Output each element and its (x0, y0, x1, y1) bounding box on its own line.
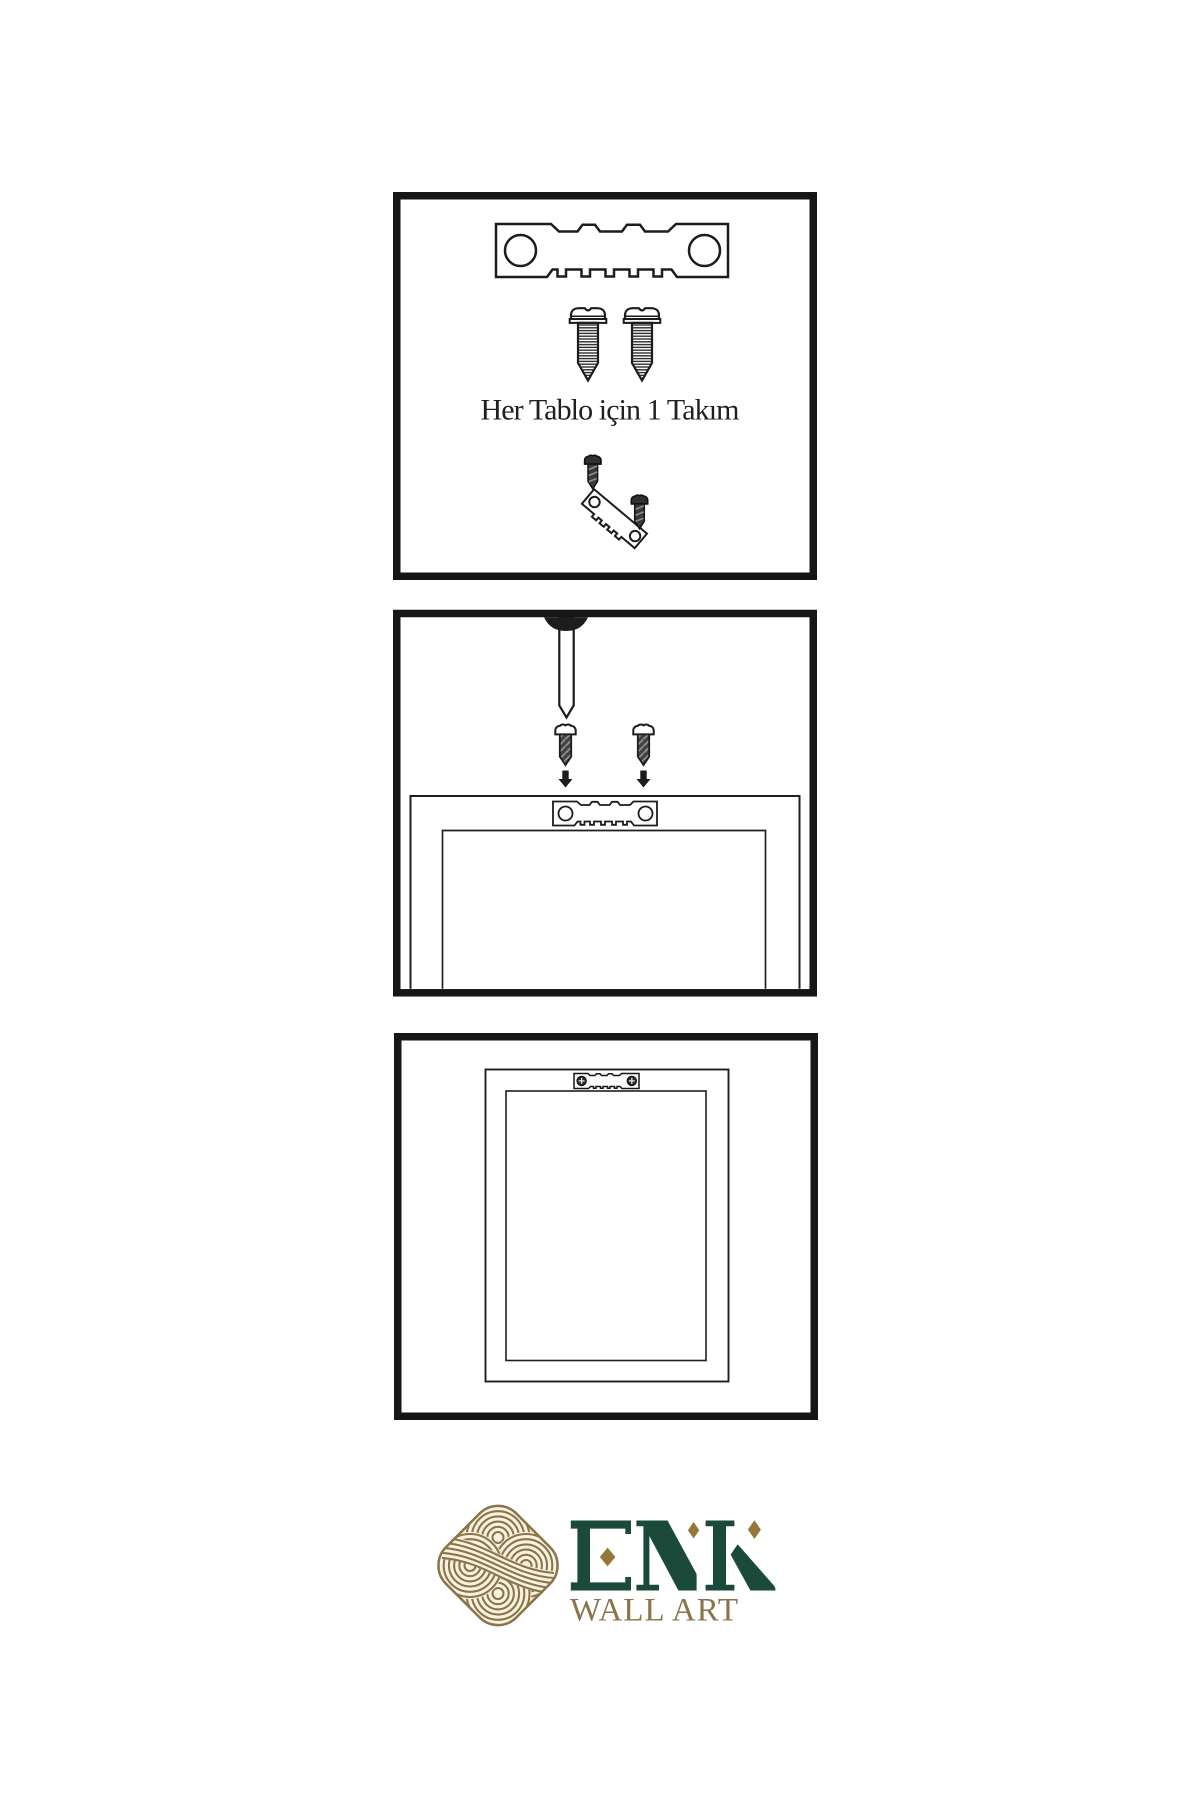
svg-text:Her Tablo için 1 Takım: Her Tablo için 1 Takım (481, 394, 740, 427)
svg-text:WALL ART: WALL ART (570, 1593, 738, 1629)
